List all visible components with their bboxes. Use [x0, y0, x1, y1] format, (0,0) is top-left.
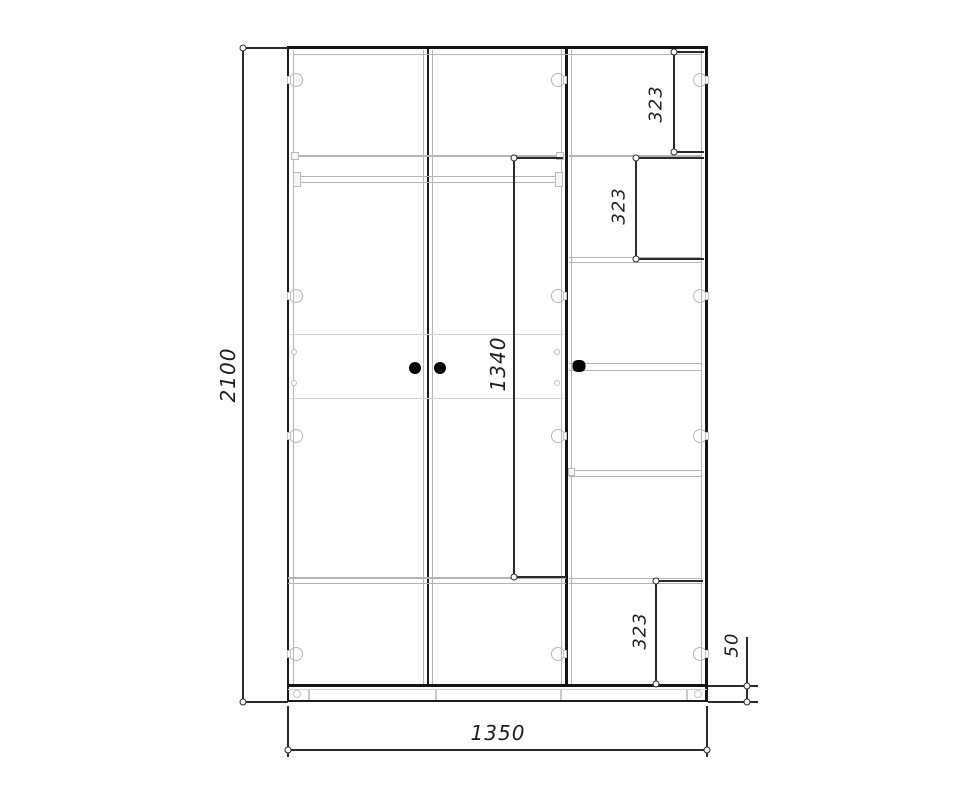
- hinge-icon: [289, 73, 303, 87]
- hinge-icon: [289, 289, 303, 303]
- drawing-sheet: 2100 1350 1340 323 323: [0, 0, 978, 800]
- shelf-bracket: [568, 468, 575, 476]
- dim-label-plinth-height: 50: [722, 633, 743, 658]
- left-door-knob: [409, 362, 421, 374]
- right-shelf-5: [569, 578, 702, 579]
- plinth-leg: [686, 690, 688, 700]
- right-shelf-5b: [569, 583, 702, 584]
- rod-bracket: [555, 172, 563, 187]
- cabinet-bottom-edge: [287, 684, 708, 687]
- hidden-shelf-line: [290, 334, 564, 335]
- left-door-right-edge: [423, 50, 424, 684]
- shelf-pin-icon: [291, 380, 297, 386]
- middle-door-right-edge: [561, 50, 562, 684]
- shelf-pin-icon: [291, 349, 297, 355]
- top-panel-inner-edge: [293, 54, 702, 55]
- rod-bracket: [293, 172, 301, 187]
- plinth-leg: [308, 690, 310, 700]
- hidden-shelf-line: [290, 398, 564, 399]
- hinge-icon: [551, 289, 565, 303]
- shelf-pin-icon: [554, 380, 560, 386]
- cabinet-right-wall: [705, 46, 708, 702]
- dim-label-top-section: 323: [646, 85, 667, 122]
- dim-label-hanging-space: 1340: [486, 337, 510, 392]
- plinth-foot-icon: [293, 690, 301, 698]
- hinge-icon: [693, 429, 707, 443]
- right-shelf-3: [569, 363, 702, 364]
- right-shelf-3b: [569, 370, 702, 371]
- plinth-leg: [560, 690, 562, 700]
- right-shelf-4: [569, 470, 702, 471]
- hinge-icon: [289, 647, 303, 661]
- shelf-pin-icon: [554, 349, 560, 355]
- middle-door-knob: [434, 362, 446, 374]
- shelf-bracket: [291, 152, 299, 160]
- hinge-icon: [693, 73, 707, 87]
- plinth-foot-icon: [694, 690, 702, 698]
- right-door-knob: [573, 360, 586, 372]
- dim-label-overall-height: 2100: [216, 348, 240, 403]
- hanging-rod-bottom: [300, 182, 556, 183]
- middle-door-left-edge: [432, 50, 433, 684]
- bottom-shelf-line: [288, 583, 566, 584]
- cabinet-left-wall: [287, 46, 289, 702]
- dim-label-second-section: 323: [609, 187, 630, 224]
- right-wall-inner-edge: [701, 50, 702, 684]
- hinge-icon: [693, 647, 707, 661]
- hinge-icon: [551, 73, 565, 87]
- hinge-icon: [693, 289, 707, 303]
- dim-label-bottom-section: 323: [630, 612, 651, 649]
- dim-label-overall-width: 1350: [471, 721, 526, 745]
- right-shelf-4b: [569, 476, 702, 477]
- hinge-icon: [289, 429, 303, 443]
- plinth-leg: [435, 690, 437, 700]
- left-wall-inner-edge: [293, 50, 294, 684]
- hanging-rod-top: [300, 176, 556, 177]
- cabinet-top-edge: [287, 46, 708, 49]
- door-divider-left: [427, 49, 429, 684]
- plinth-bottom-edge: [288, 700, 707, 702]
- hinge-icon: [551, 429, 565, 443]
- section-divider-right: [565, 49, 568, 684]
- plinth-top-line: [288, 689, 707, 690]
- hinge-icon: [551, 647, 565, 661]
